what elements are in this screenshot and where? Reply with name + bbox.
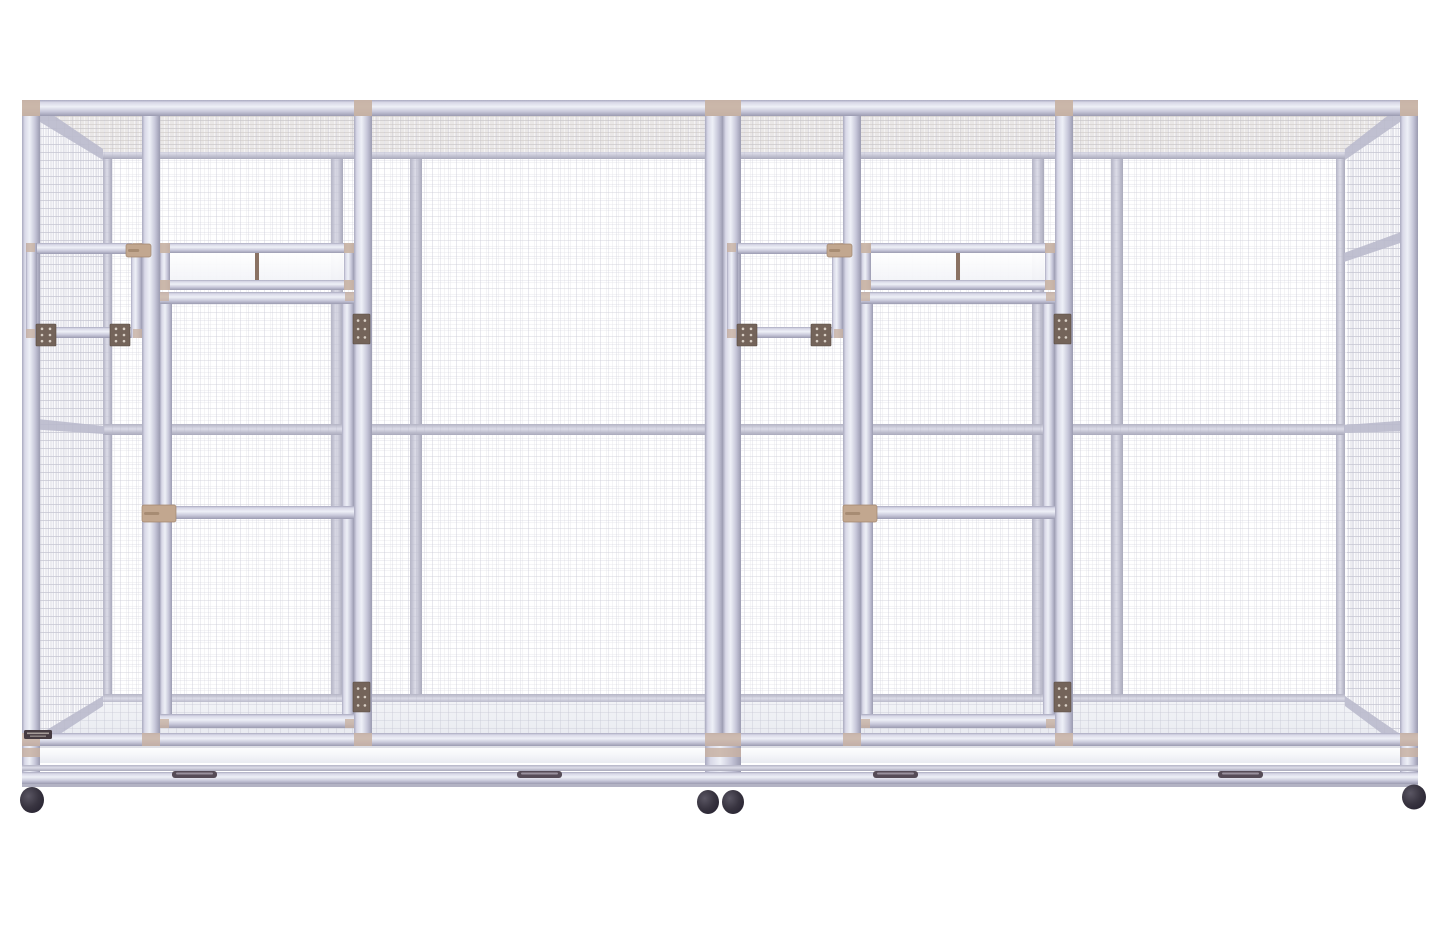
screw-icon bbox=[123, 328, 126, 331]
right-transom-frame bbox=[861, 243, 1055, 253]
screw-icon bbox=[41, 340, 44, 343]
door-cap bbox=[345, 719, 354, 728]
screw-icon bbox=[115, 328, 118, 331]
screw-icon bbox=[742, 340, 745, 343]
hatch-cap bbox=[133, 329, 142, 338]
door-cap bbox=[1046, 292, 1055, 301]
transom-cap bbox=[344, 243, 354, 253]
screw-icon bbox=[816, 328, 819, 331]
screw-icon bbox=[1065, 696, 1068, 699]
door-cap bbox=[1046, 719, 1055, 728]
brand-plate bbox=[24, 730, 52, 739]
caster-wheel bbox=[1402, 785, 1426, 810]
left-door-top-rail bbox=[160, 292, 354, 304]
screw-icon bbox=[357, 704, 360, 707]
door-cap bbox=[160, 292, 169, 301]
screw-icon bbox=[115, 334, 118, 337]
caster-wheel bbox=[20, 787, 44, 813]
base-leg-cap bbox=[22, 748, 40, 757]
screw-icon bbox=[49, 328, 52, 331]
right-hatch-frame bbox=[727, 243, 843, 254]
transom-cap bbox=[160, 243, 170, 253]
left-hatch-frame bbox=[26, 243, 142, 254]
screw-icon bbox=[364, 687, 367, 690]
left-transom-frame bbox=[160, 243, 354, 253]
left-hatch-hinge bbox=[36, 324, 56, 346]
frame-cap bbox=[1055, 733, 1073, 746]
right-hatch-hinge bbox=[737, 324, 757, 346]
door-cap bbox=[345, 292, 354, 301]
screw-icon bbox=[49, 340, 52, 343]
brand-plate-text-line bbox=[30, 736, 46, 737]
right-door-hinge-plate bbox=[1054, 682, 1071, 712]
corner-cap bbox=[1055, 100, 1073, 116]
right-transom-frame bbox=[861, 280, 1055, 290]
left-door-hinge-plate bbox=[353, 314, 370, 344]
aviary-product-image: White aluminium double flight bird aviar… bbox=[0, 0, 1445, 927]
transom-cap bbox=[861, 243, 871, 253]
screw-icon bbox=[1058, 336, 1061, 339]
right-door-hinge-plate bbox=[1054, 314, 1071, 344]
transom-cap bbox=[344, 280, 354, 290]
screw-icon bbox=[115, 340, 118, 343]
screw-icon bbox=[824, 328, 827, 331]
left-door-hinge-plate bbox=[353, 682, 370, 712]
right-door-mid-rail bbox=[861, 506, 1055, 519]
screw-icon bbox=[1058, 696, 1061, 699]
scene bbox=[20, 100, 1426, 814]
base-leg-cap bbox=[705, 748, 741, 757]
screw-icon bbox=[123, 334, 126, 337]
left-transom-mullion bbox=[255, 251, 259, 282]
screw-icon bbox=[357, 696, 360, 699]
right-door-top-rail bbox=[861, 292, 1055, 304]
front-post bbox=[705, 102, 723, 746]
base-leg-cap bbox=[1400, 748, 1418, 757]
right-door-hinge bbox=[1054, 314, 1071, 344]
left-hatch-hinge-plate bbox=[110, 324, 130, 346]
tray-handle-highlight bbox=[521, 773, 558, 775]
transom-cap bbox=[861, 280, 871, 290]
front-post bbox=[843, 102, 861, 746]
screw-icon bbox=[1065, 336, 1068, 339]
screw-icon bbox=[364, 319, 367, 322]
right-transom-mullion bbox=[956, 251, 960, 282]
screw-icon bbox=[1058, 687, 1061, 690]
door-cap bbox=[160, 719, 169, 728]
screw-icon bbox=[816, 340, 819, 343]
screw-icon bbox=[123, 340, 126, 343]
hatch-cap bbox=[26, 243, 35, 252]
left-door-mid-rail bbox=[160, 506, 354, 519]
tray-handle-highlight bbox=[877, 773, 914, 775]
corner-cap bbox=[705, 100, 741, 116]
screw-icon bbox=[750, 334, 753, 337]
caster-wheel bbox=[722, 790, 744, 814]
base-rail-lower bbox=[22, 772, 1418, 784]
left-hatch-frame bbox=[26, 243, 37, 338]
screw-icon bbox=[1065, 319, 1068, 322]
right-hatch-hinge-plate bbox=[811, 324, 831, 346]
base-rail-upper bbox=[22, 765, 1418, 771]
left-hatch-hinge bbox=[110, 324, 130, 346]
left-door-hinge bbox=[353, 682, 370, 712]
screw-icon bbox=[49, 334, 52, 337]
screw-icon bbox=[824, 340, 827, 343]
screw-icon bbox=[824, 334, 827, 337]
screw-icon bbox=[1058, 704, 1061, 707]
tray-handle-highlight bbox=[176, 773, 213, 775]
screw-icon bbox=[742, 334, 745, 337]
frame-cap bbox=[142, 733, 160, 746]
corner-cap bbox=[1400, 100, 1418, 116]
screw-icon bbox=[1058, 319, 1061, 322]
screw-icon bbox=[364, 336, 367, 339]
left-door-hinge bbox=[353, 314, 370, 344]
screw-icon bbox=[357, 687, 360, 690]
left-door-latch-bar bbox=[144, 512, 159, 515]
screw-icon bbox=[1058, 328, 1061, 331]
right-door-latch-bar bbox=[845, 512, 860, 515]
left-hatch-latch-bar bbox=[128, 249, 139, 252]
brand-plate-text-line bbox=[27, 733, 49, 735]
front-post bbox=[354, 102, 372, 746]
corner-cap bbox=[22, 100, 40, 116]
screw-icon bbox=[41, 328, 44, 331]
corner-cap bbox=[354, 100, 372, 116]
front-post bbox=[1400, 102, 1418, 746]
frame-cap bbox=[843, 733, 861, 746]
hatch-cap bbox=[727, 243, 736, 252]
hatch-cap bbox=[834, 329, 843, 338]
right-hatch-latch-bar bbox=[829, 249, 840, 252]
left-door-bottom-rail bbox=[160, 714, 354, 728]
screw-icon bbox=[1065, 687, 1068, 690]
front-post bbox=[142, 102, 160, 746]
tray-handle-highlight bbox=[1222, 773, 1259, 775]
frame-cap bbox=[705, 733, 741, 746]
screw-icon bbox=[816, 334, 819, 337]
left-transom-frame bbox=[160, 280, 354, 290]
screw-icon bbox=[1065, 704, 1068, 707]
screw-icon bbox=[1065, 328, 1068, 331]
frame-cap bbox=[354, 733, 372, 746]
screw-icon bbox=[364, 328, 367, 331]
right-hatch-hinge-plate bbox=[737, 324, 757, 346]
screw-icon bbox=[357, 336, 360, 339]
transom-cap bbox=[160, 280, 170, 290]
caster-wheel bbox=[697, 790, 719, 814]
right-hatch-frame bbox=[727, 243, 738, 338]
right-door-hinge bbox=[1054, 682, 1071, 712]
left-hatch-hinge-plate bbox=[36, 324, 56, 346]
screw-icon bbox=[364, 696, 367, 699]
screw-icon bbox=[750, 340, 753, 343]
front-post bbox=[22, 102, 40, 746]
right-hatch-hinge bbox=[811, 324, 831, 346]
screw-icon bbox=[357, 319, 360, 322]
hatch-cap bbox=[727, 329, 736, 338]
hatch-cap bbox=[26, 329, 35, 338]
front-post bbox=[1055, 102, 1073, 746]
front-post bbox=[723, 102, 741, 746]
door-cap bbox=[861, 719, 870, 728]
base-edge bbox=[22, 784, 1418, 787]
right-door-bottom-rail bbox=[861, 714, 1055, 728]
door-cap bbox=[861, 292, 870, 301]
screw-icon bbox=[750, 328, 753, 331]
transom-cap bbox=[1045, 280, 1055, 290]
aviary-cage-render bbox=[0, 0, 1445, 927]
transom-cap bbox=[1045, 243, 1055, 253]
frame-cap bbox=[1400, 733, 1418, 746]
screw-icon bbox=[41, 334, 44, 337]
screw-icon bbox=[364, 704, 367, 707]
screw-icon bbox=[742, 328, 745, 331]
screw-icon bbox=[357, 328, 360, 331]
